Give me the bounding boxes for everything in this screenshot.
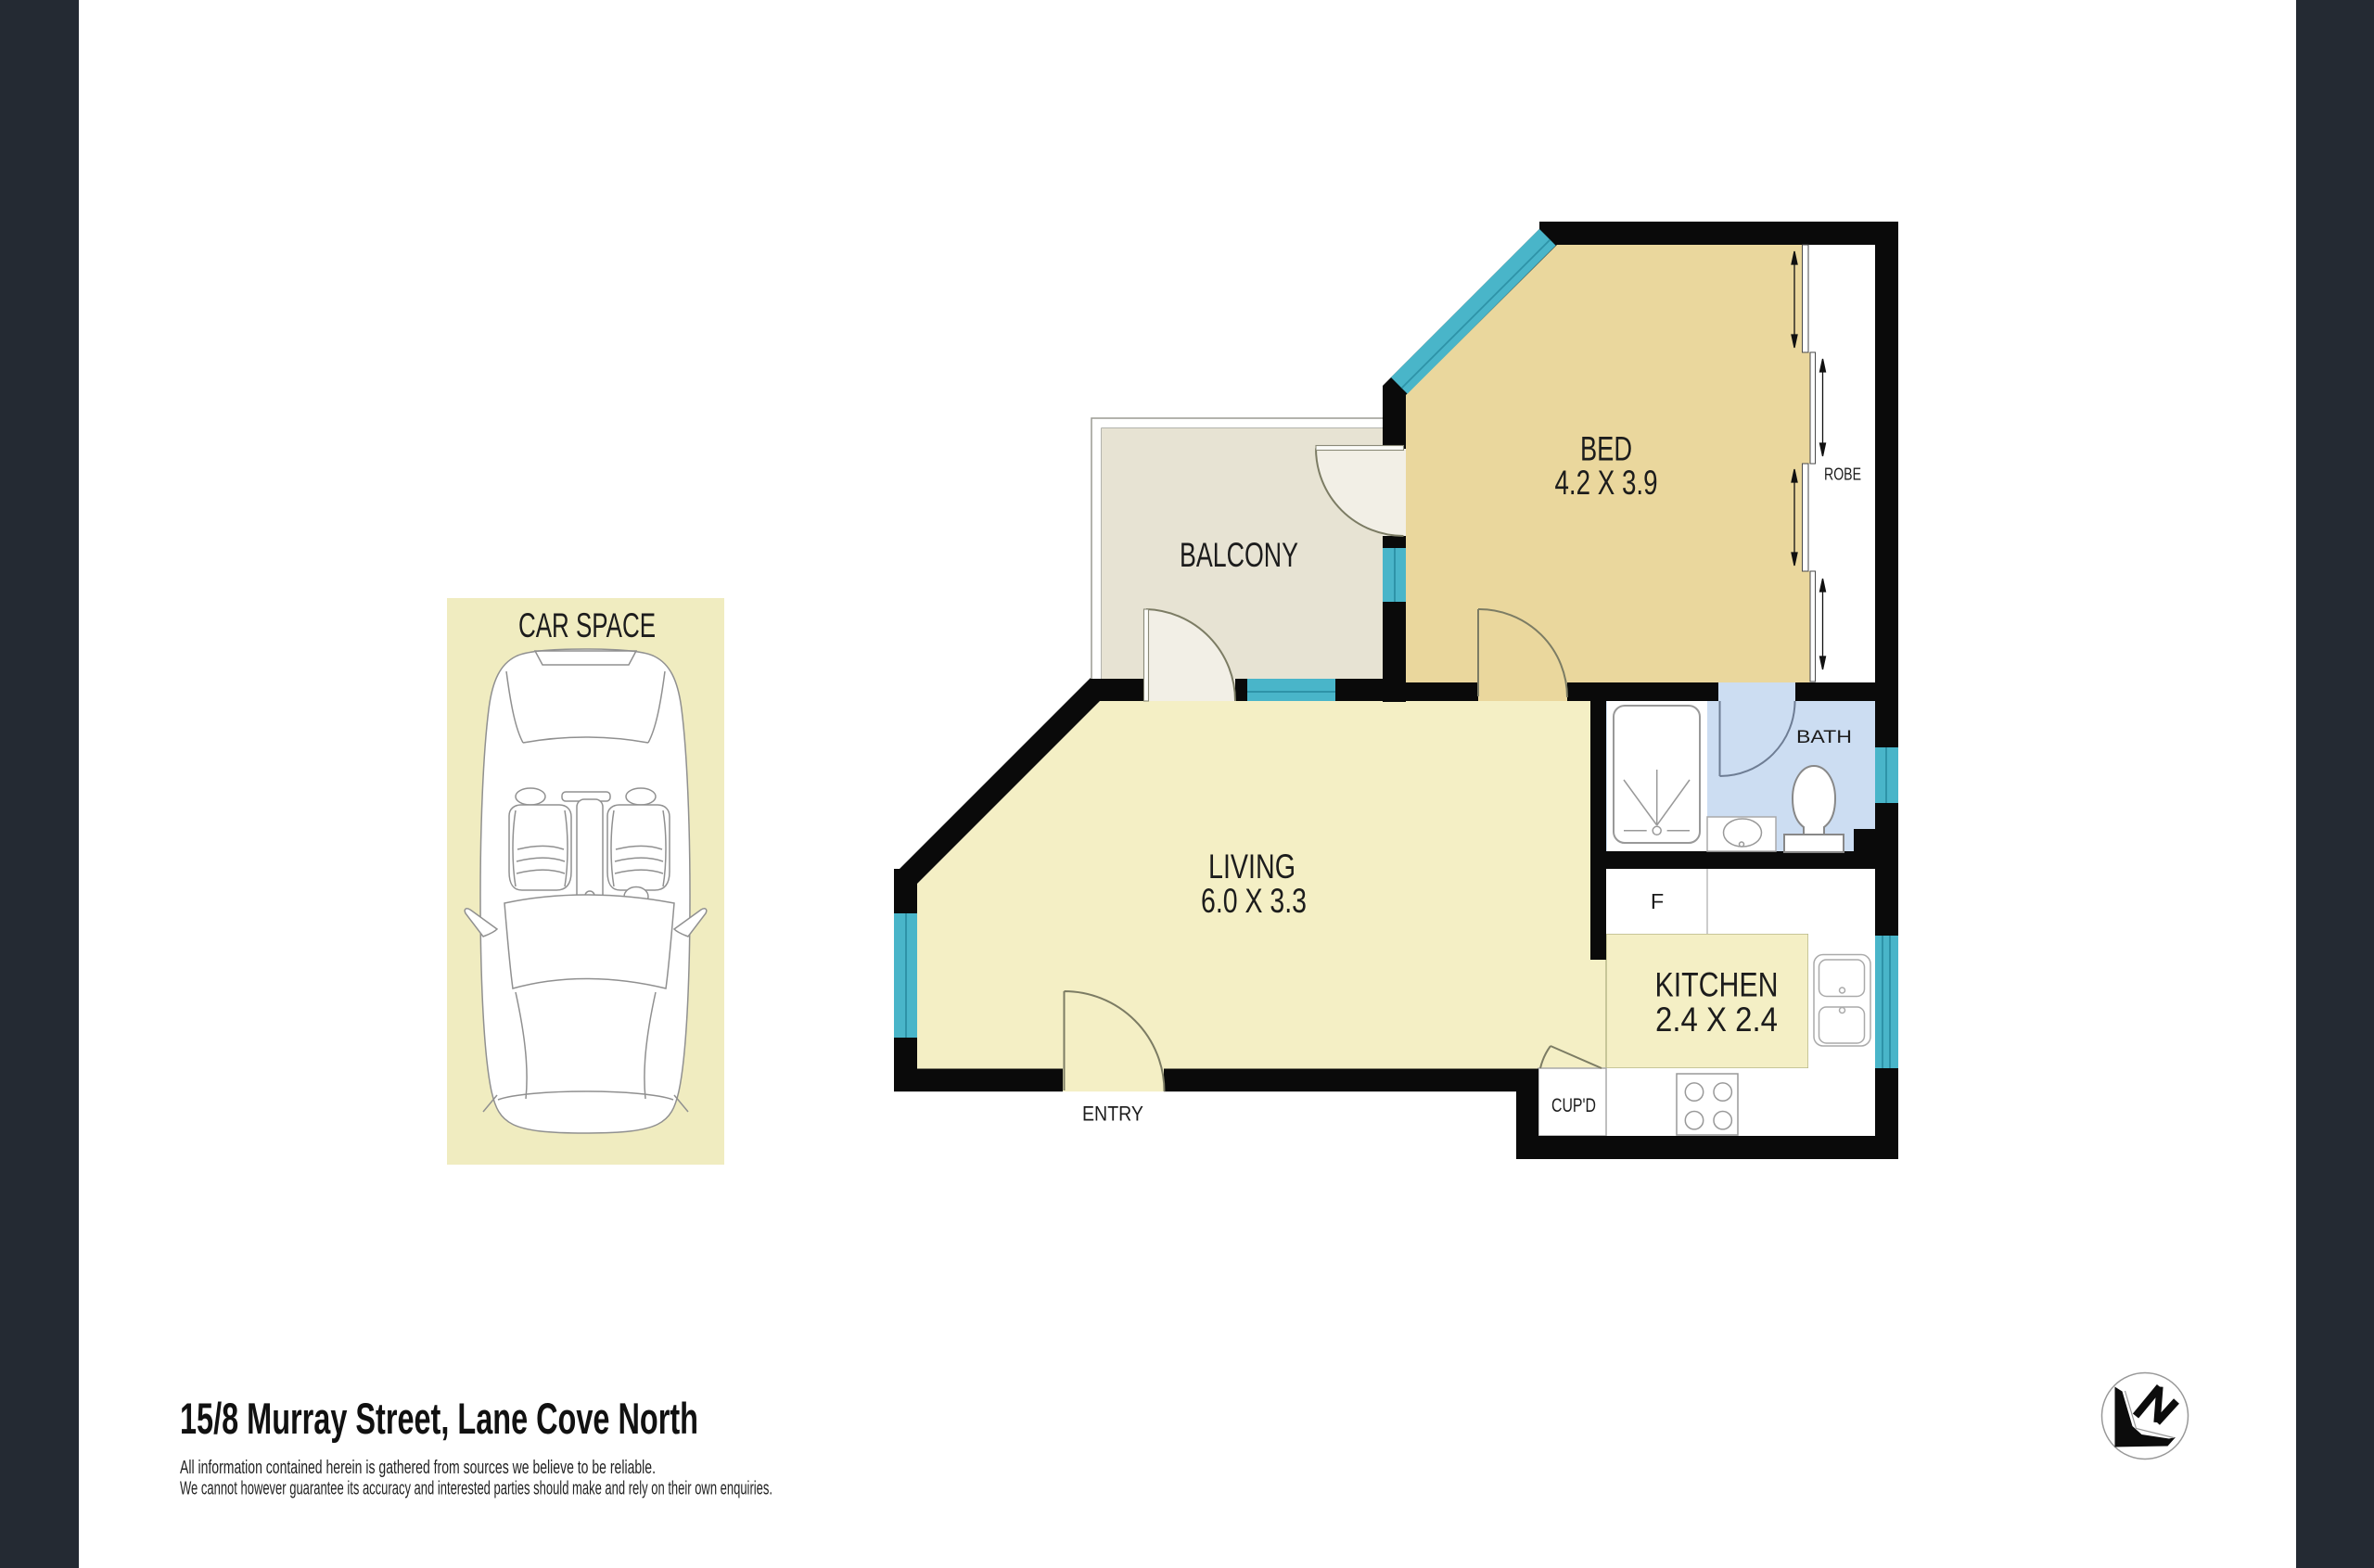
svg-text:15/8 Murray Street, Lane Cove: 15/8 Murray Street, Lane Cove North — [180, 1394, 698, 1443]
svg-text:We cannot however guarantee it: We cannot however guarantee its accuracy… — [180, 1479, 772, 1499]
svg-text:CAR SPACE: CAR SPACE — [518, 606, 656, 644]
svg-text:KITCHEN: KITCHEN — [1655, 966, 1779, 1004]
svg-text:2.4 X 2.4: 2.4 X 2.4 — [1655, 1001, 1778, 1039]
svg-text:ENTRY: ENTRY — [1082, 1103, 1143, 1126]
svg-text:BALCONY: BALCONY — [1180, 536, 1298, 574]
svg-text:BATH: BATH — [1796, 727, 1852, 747]
svg-text:ROBE: ROBE — [1824, 465, 1861, 484]
svg-text:LIVING: LIVING — [1208, 848, 1295, 886]
svg-text:F: F — [1651, 889, 1664, 913]
svg-text:6.0 X 3.3: 6.0 X 3.3 — [1201, 882, 1307, 920]
svg-text:4.2 X 3.9: 4.2 X 3.9 — [1555, 464, 1658, 502]
svg-text:All information contained here: All information contained herein is gath… — [180, 1458, 656, 1478]
svg-text:CUP'D: CUP'D — [1551, 1094, 1596, 1116]
svg-text:BED: BED — [1580, 430, 1632, 468]
